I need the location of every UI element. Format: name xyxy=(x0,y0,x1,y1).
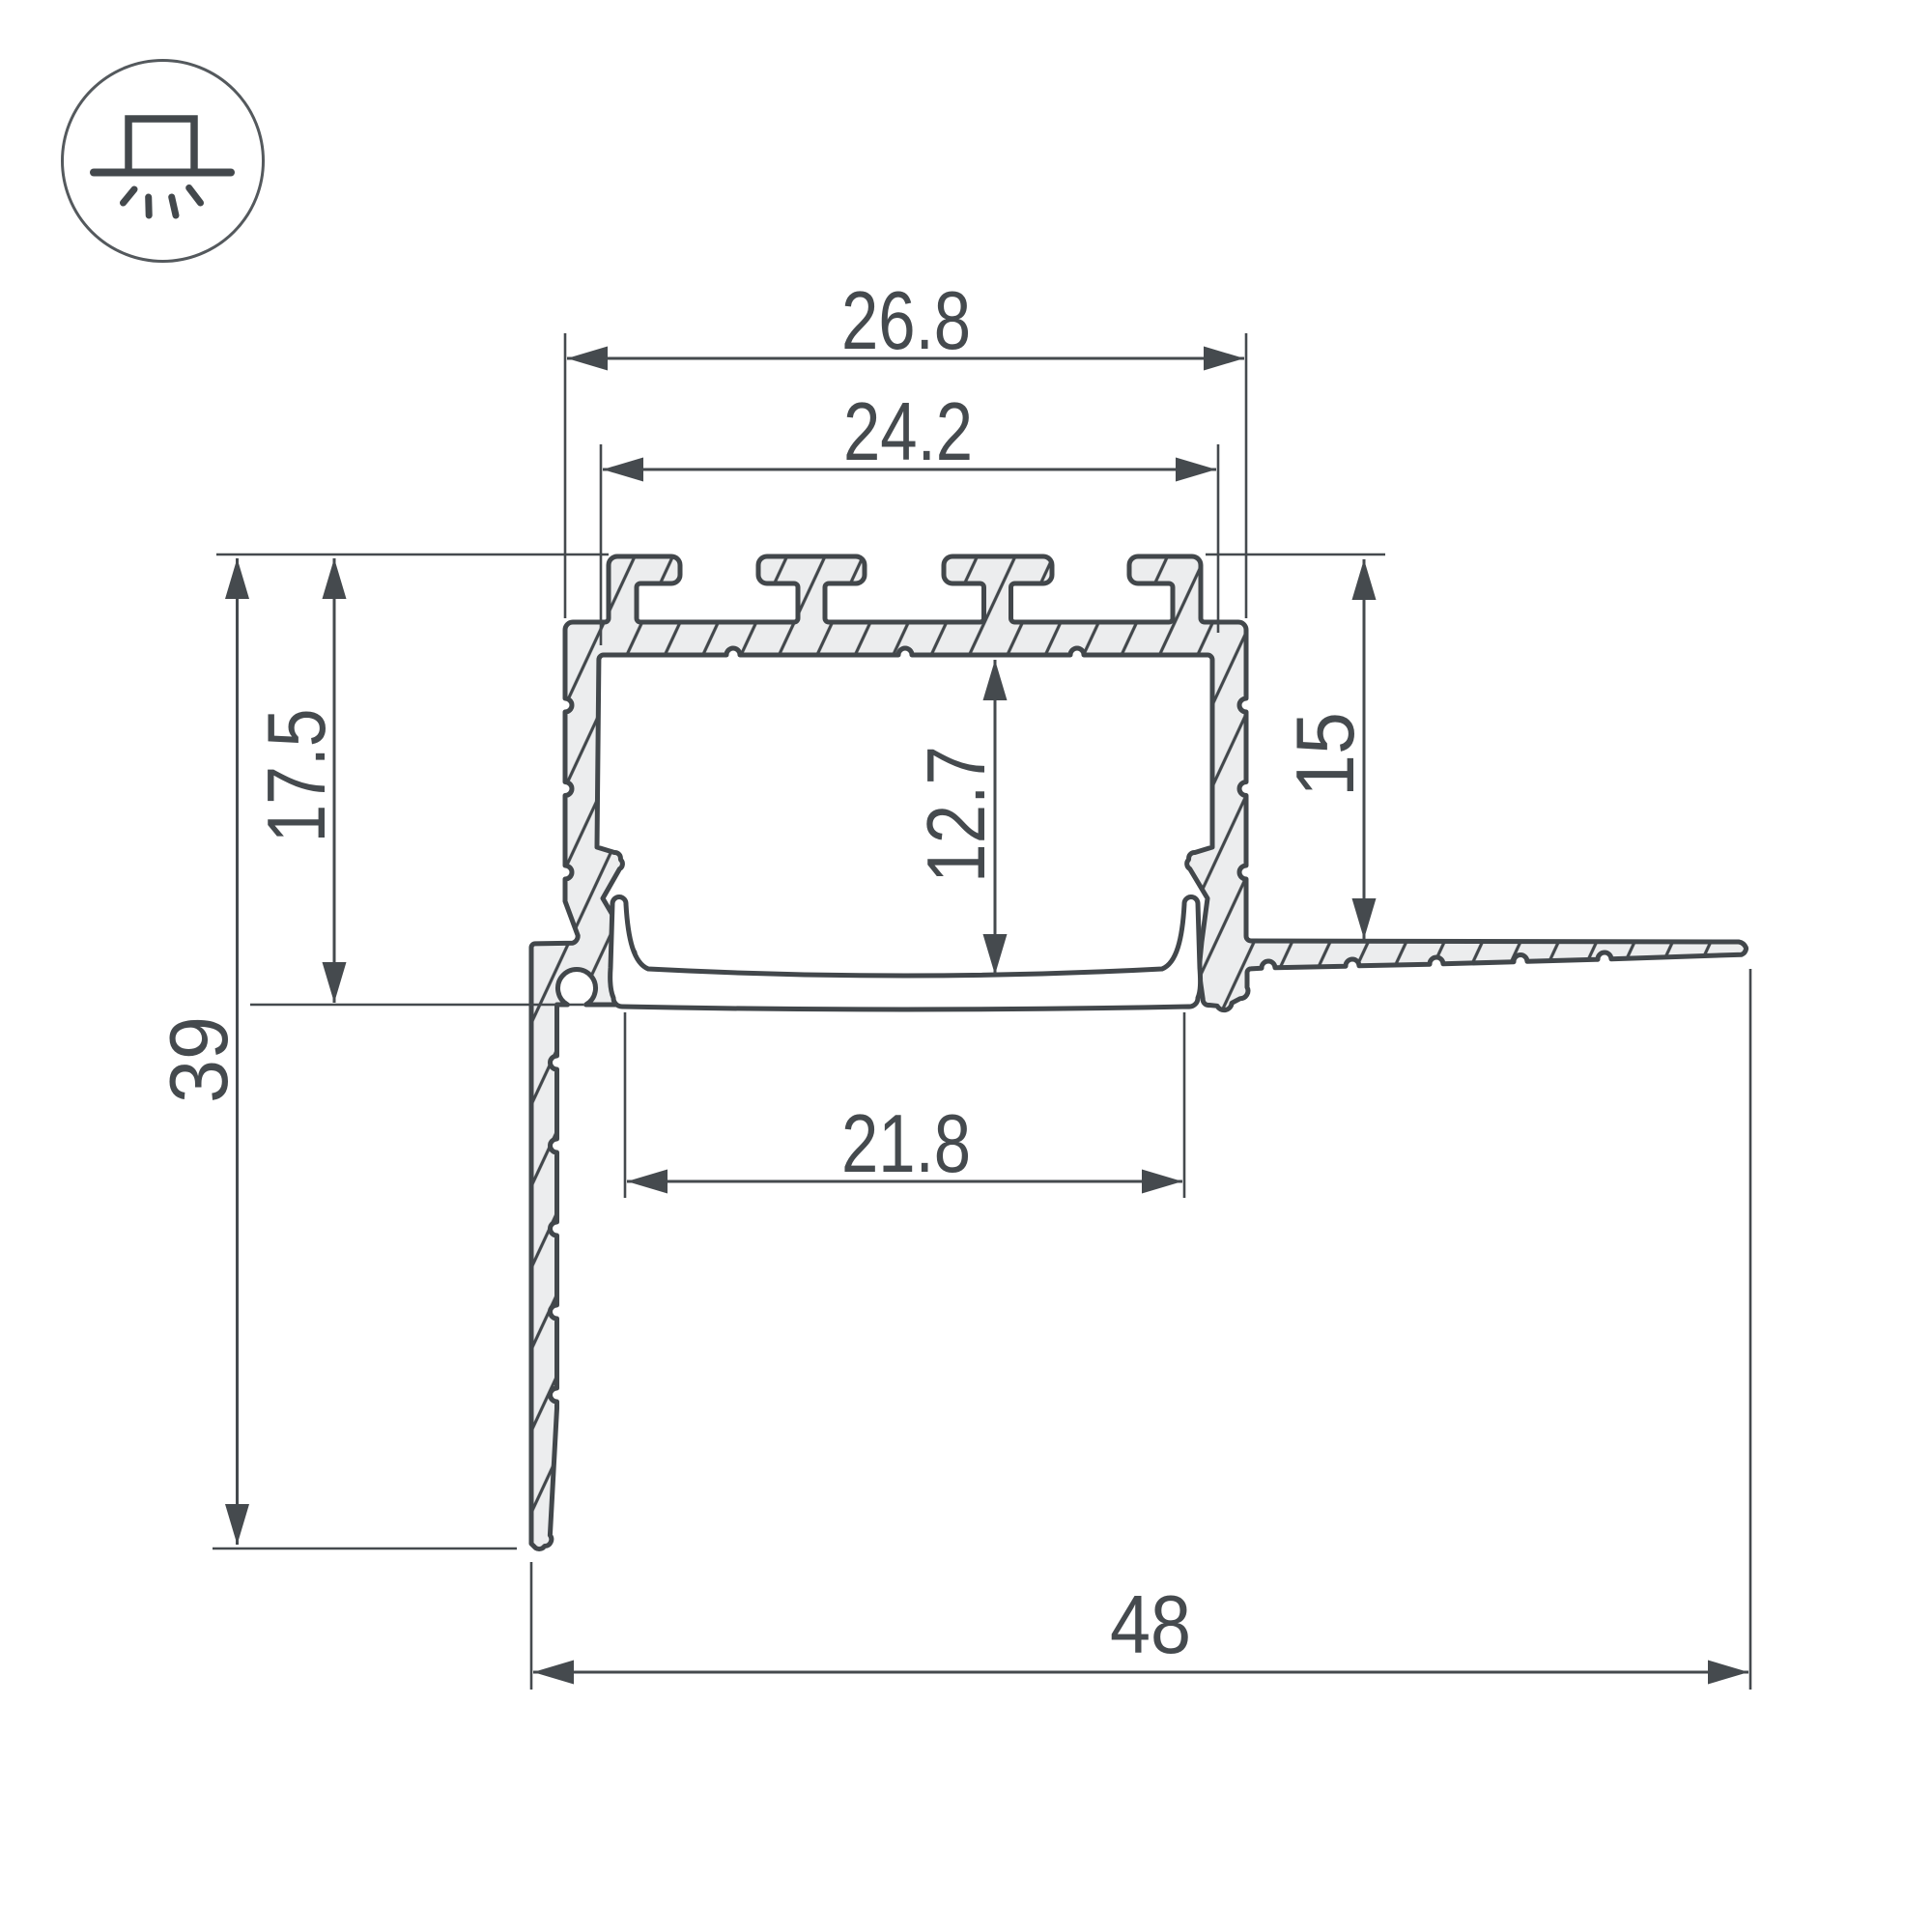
svg-text:39: 39 xyxy=(154,1016,245,1103)
svg-text:15: 15 xyxy=(1280,712,1372,797)
svg-text:12.7: 12.7 xyxy=(911,746,1003,883)
svg-text:48: 48 xyxy=(1110,1579,1191,1671)
svg-text:26.8: 26.8 xyxy=(841,275,971,367)
svg-text:17.5: 17.5 xyxy=(251,709,343,843)
svg-text:24.2: 24.2 xyxy=(843,386,973,478)
svg-text:21.8: 21.8 xyxy=(841,1098,971,1190)
